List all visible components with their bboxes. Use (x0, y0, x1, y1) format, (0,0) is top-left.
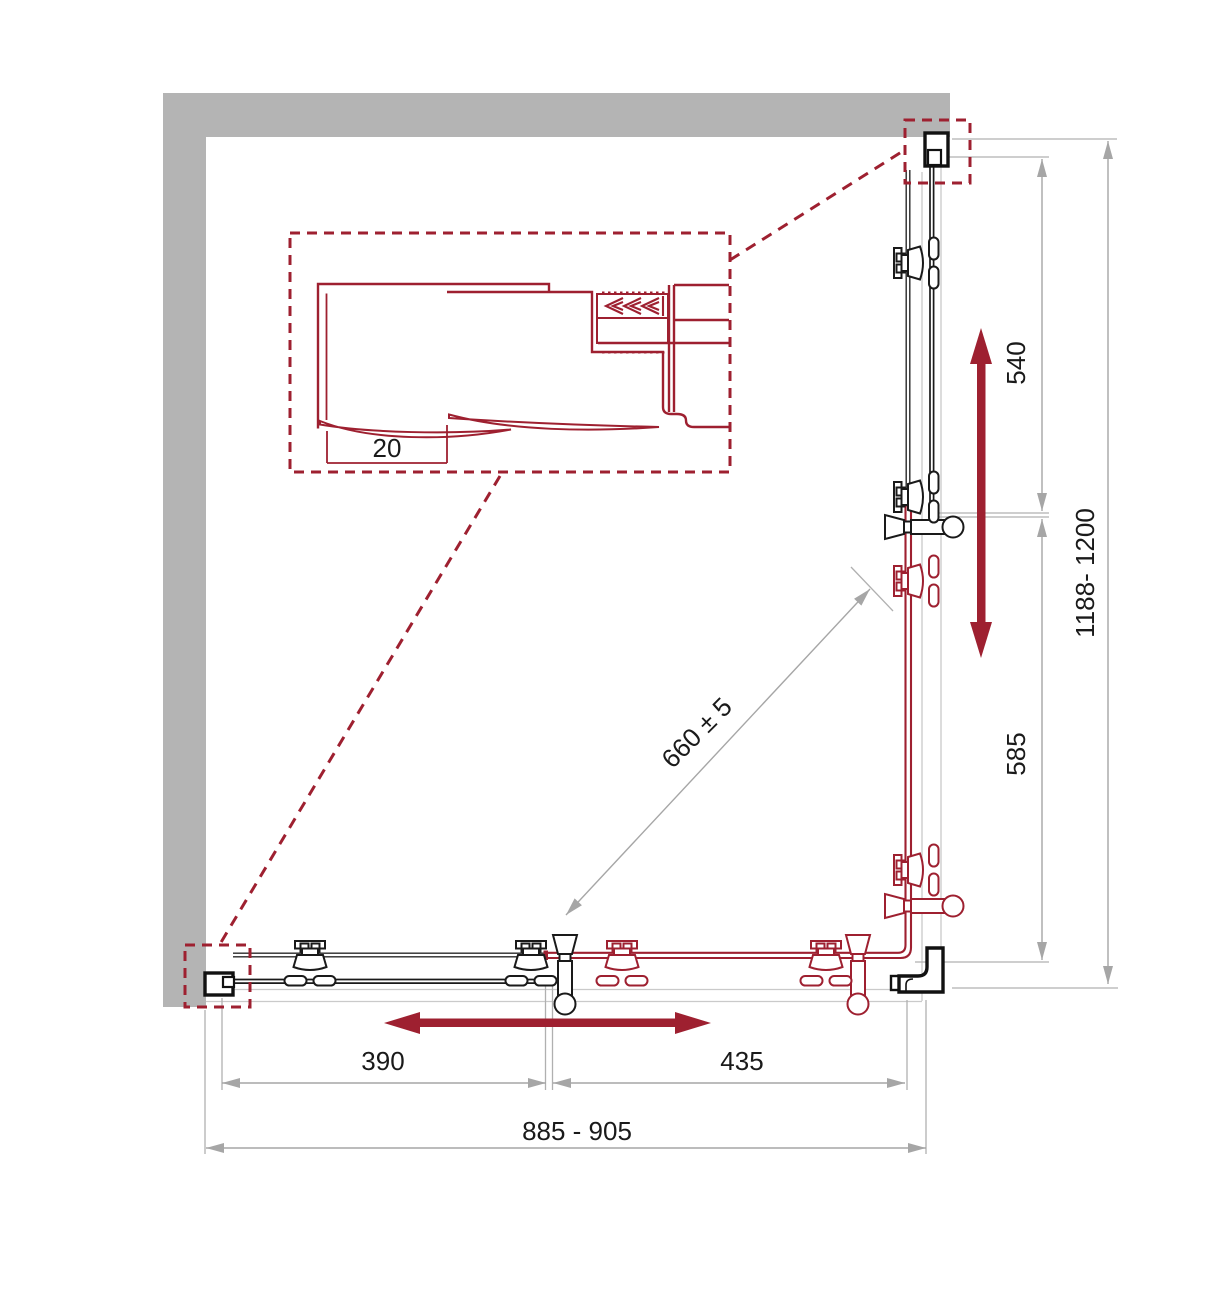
roller-carriage (597, 941, 648, 986)
tray-edges (206, 140, 941, 1002)
dim-585-label: 585 (1001, 732, 1031, 775)
roller-carriage (894, 845, 939, 896)
track-lines (233, 170, 910, 957)
dim-540-label: 540 (1001, 341, 1031, 384)
wall-left (163, 93, 206, 1007)
roller-carriage (894, 556, 939, 607)
dim-diagonal-label: 660 ± 5 (655, 691, 737, 773)
fixed-panels (233, 167, 934, 983)
technical-drawing-canvas: 390 435 885 - 905 540 1188- 1200 585 660… (0, 0, 1221, 1300)
dim-435-label: 435 (720, 1046, 763, 1076)
dim-line-diagonal (566, 589, 870, 915)
door-handle-knob (846, 935, 870, 1015)
detail-leader-line (730, 151, 903, 260)
door-handle-knob (885, 894, 964, 918)
detail-callouts (185, 120, 970, 1007)
roller-carriage (801, 941, 852, 986)
dim-overall-width-label: 885 - 905 (522, 1116, 632, 1146)
slide-direction-arrow-horizontal (384, 1012, 711, 1034)
wall-profile-top-right (925, 133, 948, 166)
profile-outer-wall (318, 284, 549, 429)
slide-direction-arrow-vertical (970, 328, 992, 658)
gasket-blade (449, 415, 659, 430)
inset-dim-label: 20 (373, 433, 402, 463)
roller-carriage (894, 238, 939, 289)
seal-chevrons (606, 296, 663, 316)
gasket-blade (320, 421, 511, 437)
fixed-panel-right-glass (930, 167, 934, 515)
door-handle-knob (553, 935, 577, 1015)
shower-plan-svg: 390 435 885 - 905 540 1188- 1200 585 660… (0, 0, 1221, 1300)
sliding-door-red (544, 500, 915, 961)
dim-390-label: 390 (361, 1046, 404, 1076)
roller-carriage (894, 472, 939, 523)
dim-overall-height-label: 1188- 1200 (1070, 508, 1100, 638)
wall-profile-bottom-left (205, 973, 234, 995)
corner-bracket (891, 948, 943, 992)
wall-top (163, 93, 950, 137)
door-handle-knob (885, 515, 964, 539)
detail-leader-line (220, 476, 500, 944)
wall (163, 93, 950, 1007)
profile-channel (447, 292, 729, 427)
